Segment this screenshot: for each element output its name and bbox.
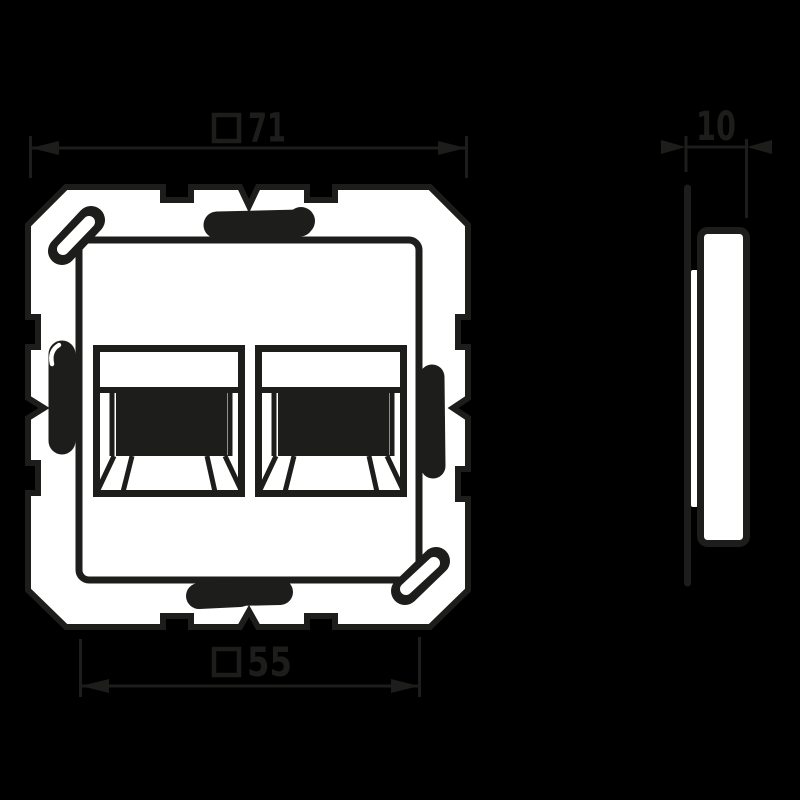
fixing-claw-left	[51, 345, 62, 441]
side-support-strip	[691, 270, 698, 507]
dimension-value-plate-width: 55	[247, 640, 292, 686]
fixing-claw-right	[432, 377, 433, 466]
dimension-value-depth: 10	[696, 104, 736, 150]
side-view	[688, 188, 747, 583]
technical-drawing: 71 55 10	[0, 0, 800, 800]
drawing-canvas: 71 55 10	[0, 0, 800, 800]
side-cover-plate-profile	[701, 231, 747, 544]
arrowhead-right	[438, 141, 466, 155]
front-view	[28, 187, 468, 627]
square-symbol	[214, 649, 239, 675]
dimension-plate-width: 55	[81, 637, 420, 697]
socket-module-1	[97, 349, 243, 494]
dimension-value-outer-width: 71	[248, 106, 286, 152]
arrowhead-left	[661, 140, 686, 154]
arrowhead-left	[81, 679, 109, 693]
socket-module-2	[259, 349, 405, 494]
dimension-depth: 10	[661, 104, 772, 218]
arrowhead-left	[31, 141, 59, 155]
fixing-claw-bottom-center	[199, 592, 280, 596]
arrowhead-right	[391, 679, 419, 693]
square-symbol	[214, 115, 239, 141]
arrowhead-right	[747, 140, 772, 154]
dimension-outer-width: 71	[31, 106, 467, 179]
fixing-claw-top-center	[217, 207, 315, 235]
